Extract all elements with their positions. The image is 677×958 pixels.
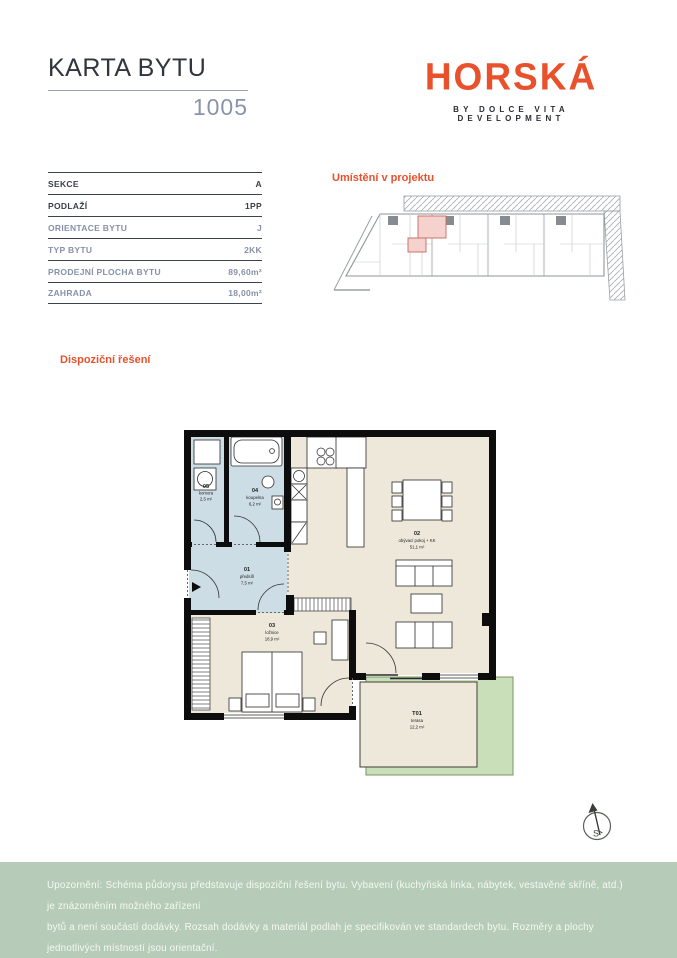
row-label: PODLAŽÍ [48,201,87,211]
compass-letter: S [593,829,599,839]
row-label: ZAHRADA [48,288,92,298]
room-name: ložnice [265,630,279,635]
room-area: 6,2 m² [249,502,262,507]
room-id: 02 [414,531,420,537]
row-value: 18,00m² [228,288,262,298]
unit-number: 1005 [48,94,248,121]
room-area: 18,9 m² [265,637,280,642]
apartment-card-page: KARTA BYTU 1005 HORSKÁ BY DOLCE VITA DEV… [0,0,677,958]
room-id: 01 [244,567,250,573]
row-label: TYP BYTU [48,245,92,255]
room-name: obývací pokoj + KK [399,538,436,543]
row-value: J [257,223,262,233]
compass-north-icon: S [575,798,621,846]
siteplan-hatch-band [404,196,620,211]
brand-logo: HORSKÁ BY DOLCE VITA DEVELOPMENT [400,58,622,123]
room-id: 05 [203,484,209,490]
table-row: TYP BYTU 2KK [48,238,262,260]
dining-set [392,480,452,521]
sofa-icon [396,560,452,586]
row-label: SEKCE [48,179,79,189]
room-id: 03 [269,623,275,629]
table-row: ORIENTACE BYTU J [48,216,262,238]
table-row: ZAHRADA 18,00m² [48,282,262,304]
siteplan-highlighted-unit-part [408,238,426,252]
title-divider [48,90,248,91]
room-area: 12,2 m² [410,725,425,730]
room-area: 51,1 m² [410,545,425,550]
row-value: 1PP [245,201,262,211]
disclaimer-line: bytů a není součástí dodávky. Rozsah dod… [47,917,630,958]
room-name: koupelna [246,495,264,500]
siteplan-highlighted-unit [418,216,446,238]
footer-disclaimer: Upozornění: Schéma půdorysu představuje … [0,862,677,958]
logo-wordmark: HORSKÁ [400,58,622,96]
room-area: 2,5 m² [200,497,213,502]
room-name: terasa [411,718,424,723]
row-value: 2KK [244,245,262,255]
room-name: předsíň [240,574,255,579]
table-row: PODLAŽÍ 1PP [48,194,262,216]
layout-heading: Dispoziční řešení [60,354,150,366]
row-value: A [256,179,262,189]
room-area: 7,5 m² [241,581,254,586]
room-name: komora [199,491,214,496]
floor-plan-drawing: 05 komora 2,5 m² 04 koupelna 6,2 m² 01 p… [184,430,514,776]
location-heading: Umístění v projektu [332,172,434,184]
room-fill-hall [189,542,294,616]
double-bed-icon [229,652,315,712]
title-block: KARTA BYTU 1005 [48,54,248,121]
row-label: ORIENTACE BYTU [48,223,127,233]
sideboard-icon [396,622,452,648]
coffee-table-icon [411,594,442,613]
room-id: 04 [252,488,259,494]
row-label: PRODEJNÍ PLOCHA BYTU [48,267,161,277]
table-row: SEKCE A [48,172,262,194]
bathtub-icon [231,437,282,466]
room-id: T01 [412,711,422,717]
page-title: KARTA BYTU [48,54,248,83]
logo-tagline: BY DOLCE VITA DEVELOPMENT [400,105,622,123]
table-row: PRODEJNÍ PLOCHA BYTU 89,60m² [48,260,262,282]
siteplan-hatch-right [604,211,625,300]
disclaimer-line: Upozornění: Schéma půdorysu představuje … [47,875,630,917]
row-value: 89,60m² [228,267,262,277]
site-plan-drawing [332,192,627,307]
apartment-details-table: SEKCE A PODLAŽÍ 1PP ORIENTACE BYTU J TYP… [48,172,262,304]
